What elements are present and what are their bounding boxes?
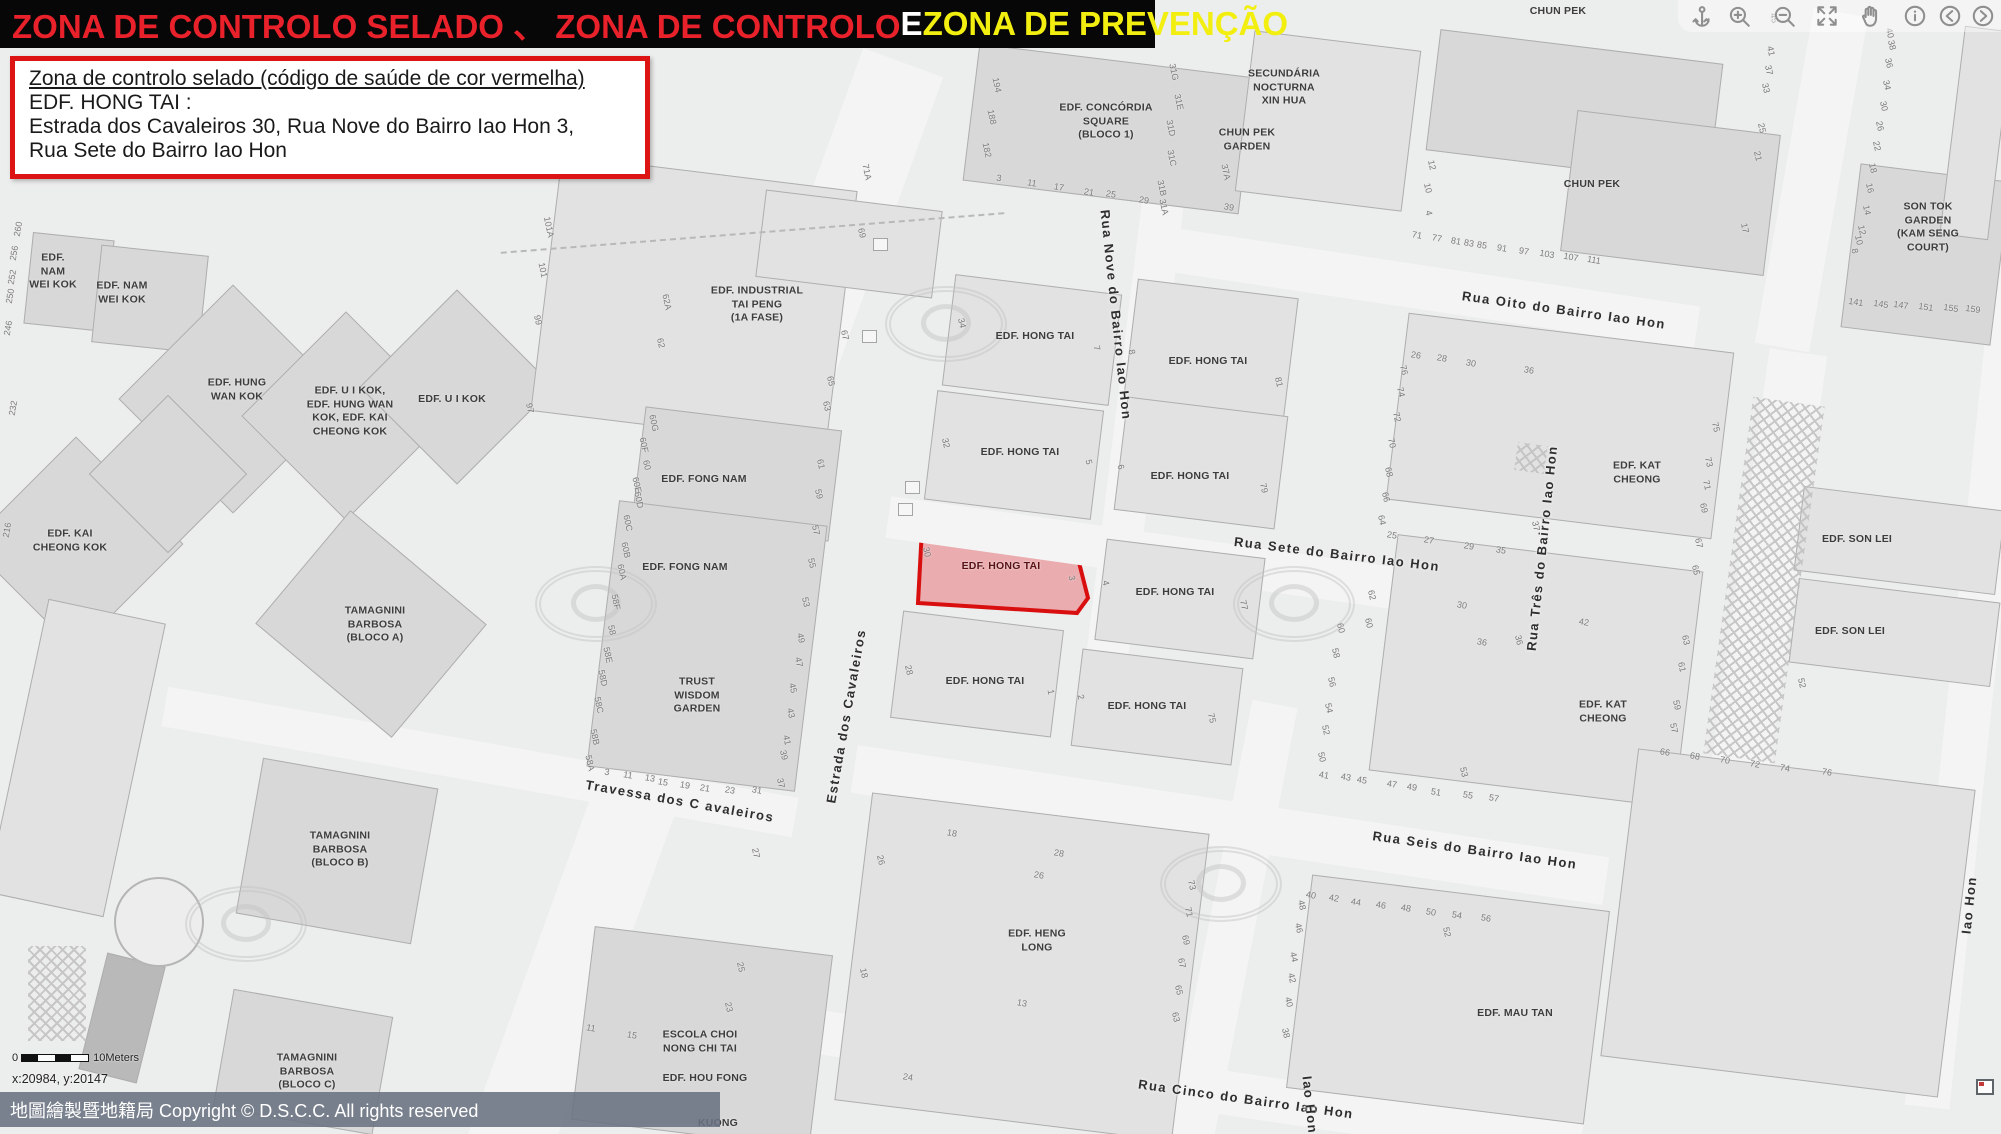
house-number-label: 37 <box>775 777 787 789</box>
crossing-marker <box>905 481 920 494</box>
hatched-area <box>28 946 86 1041</box>
house-number-label: 36 <box>1513 634 1525 646</box>
house-number-label: 52 <box>1441 926 1453 938</box>
house-number-label: 18 <box>1867 162 1879 174</box>
title-segment: ZONA DE CONTROLO SELADO 、 ZONA DE CONTRO… <box>12 0 901 48</box>
building-label-line: EDF. HONG TAI <box>962 560 1041 574</box>
house-number-label: 25 <box>1756 122 1768 134</box>
house-number-label: 53 <box>1458 766 1470 778</box>
building-label-line: TAMAGNINI <box>277 1052 338 1066</box>
info-line-address-1: Estrada dos Cavaleiros 30, Rua Nove do B… <box>29 115 633 139</box>
house-number-label: 22 <box>1871 140 1883 152</box>
house-number-label: 47 <box>1386 778 1398 790</box>
house-number-label: 63 <box>1170 1011 1182 1023</box>
building-label-line: ESCOLA CHOI <box>663 1028 738 1042</box>
house-number-label: 18 <box>946 827 958 839</box>
dscc-watermark <box>1160 846 1282 922</box>
house-number-label: 83 <box>1463 237 1475 249</box>
building-label: EDF. KATCHEONG <box>1579 698 1627 725</box>
building-label-line: WEI KOK <box>29 279 76 293</box>
house-number-label: 39 <box>778 749 790 761</box>
house-number-label: 66 <box>1659 746 1671 758</box>
building-label-line: (KAM SENG <box>1897 228 1959 242</box>
scale-bar-graphic <box>21 1054 89 1062</box>
house-number-label: 77 <box>1431 232 1443 244</box>
house-number-label: 55 <box>1462 789 1474 801</box>
building-label: EDF. HONG TAI <box>1108 700 1187 714</box>
house-number-label: 43 <box>1340 771 1352 783</box>
house-number-label: 30 <box>1878 100 1890 112</box>
house-number-label: 38 <box>1886 39 1898 51</box>
house-number-label: 39 <box>1223 201 1235 213</box>
building-footprint <box>1286 875 1610 1125</box>
house-number-label: 26 <box>1874 120 1886 132</box>
building-label: TAMAGNINIBARBOSA(BLOCO A) <box>345 605 406 646</box>
house-number-label: 65 <box>825 375 837 387</box>
building-label-line: WEI KOK <box>96 293 147 307</box>
house-number-label: 36 <box>1523 364 1535 376</box>
house-number-label: 29 <box>1138 194 1150 206</box>
building-label: EDF. SON LEI <box>1815 625 1885 639</box>
building-label: EDF. KATCHEONG <box>1613 459 1661 486</box>
house-number-label: 27 <box>750 847 762 859</box>
building-label-line: SON TOK <box>1897 201 1959 215</box>
back-icon[interactable] <box>1937 3 1963 29</box>
house-number-label: 46 <box>1293 922 1305 934</box>
building-label-line: (BLOCO C) <box>277 1079 338 1093</box>
building-label-line: EDF. HOU FONG <box>663 1072 748 1086</box>
building-label-line: SECUNDÁRIA <box>1248 68 1320 82</box>
house-number-label: 107 <box>1563 251 1580 263</box>
building-label-line: EDF. U I KOK <box>418 393 486 407</box>
house-number-label: 59 <box>1671 699 1683 711</box>
house-number-label: 25 <box>1105 188 1117 200</box>
copyright-bar: 地圖繪製暨地籍局 Copyright © D.S.C.C. All rights… <box>0 1092 720 1127</box>
building-label-line: CHEONG <box>1579 712 1627 726</box>
building-label: SON TOKGARDEN(KAM SENGCOURT) <box>1897 201 1959 256</box>
house-number-label: 67 <box>1693 537 1705 549</box>
building-label-line: LONG <box>1008 941 1066 955</box>
house-number-label: 147 <box>1893 299 1909 311</box>
building-label-line: (BLOCO B) <box>310 857 371 871</box>
house-number-label: 69 <box>856 227 868 239</box>
building-label: EDF. HONG TAI <box>946 675 1025 689</box>
house-number-label: 28 <box>903 664 915 676</box>
building-label-line: EDF. HUNG <box>208 376 266 390</box>
house-number-label: 44 <box>1350 896 1362 908</box>
building-label-line: (1A FASE) <box>711 312 803 326</box>
dscc-watermark <box>885 286 1007 362</box>
house-number-label: 68 <box>1689 750 1701 762</box>
zoom-in-icon[interactable] <box>1726 3 1752 29</box>
house-number-label: 41 <box>781 734 793 746</box>
building-label-line: (BLOCO A) <box>345 632 406 646</box>
building-label: EDF. KAICHEONG KOK <box>33 527 107 554</box>
house-number-label: 24 <box>902 1071 914 1083</box>
house-number-label: 54 <box>1323 702 1335 714</box>
scale-zero-label: 0 <box>12 1052 18 1064</box>
house-number-label: 256 <box>8 245 20 262</box>
building-label-line: CHEONG KOK <box>33 541 107 555</box>
house-number-label: 68 <box>1383 466 1395 478</box>
building-footprint <box>1235 30 1421 211</box>
building-label: EDF. MAU TAN <box>1477 1007 1553 1021</box>
building-label: EDF. HONG TAI <box>962 560 1041 574</box>
building-label: EDF. HONG TAI <box>996 330 1075 344</box>
house-number-label: 11 <box>586 1022 597 1033</box>
house-number-label: 10 <box>1853 234 1865 246</box>
house-number-label: 18 <box>858 967 870 979</box>
house-number-label: 57 <box>1488 792 1500 804</box>
house-number-label: 29 <box>1463 540 1475 552</box>
house-number-label: 19 <box>679 779 691 791</box>
building-label-line: EDF. INDUSTRIAL <box>711 285 803 299</box>
pan-hand-icon[interactable] <box>1857 3 1883 29</box>
scale-distance-label: 10Meters <box>93 1052 139 1064</box>
house-number-label: 47 <box>793 656 805 668</box>
building-label: ESCOLA CHOINONG CHI TAI <box>663 1028 738 1055</box>
building-label: EDF. HUNGWAN KOK <box>208 376 266 403</box>
house-number-label: 17 <box>1053 181 1065 193</box>
house-number-label: 37 <box>1530 520 1542 532</box>
building-label: EDF. FONG NAM <box>642 561 727 575</box>
house-number-label: 70 <box>1719 754 1731 766</box>
house-number-label: 57 <box>1668 722 1680 734</box>
house-number-label: 40 <box>1283 996 1295 1008</box>
house-number-label: 65 <box>1690 564 1702 576</box>
house-number-label: 67 <box>1176 957 1188 969</box>
building-footprint <box>890 611 1064 738</box>
house-number-label: 67 <box>839 329 851 341</box>
zoom-out-icon[interactable] <box>1771 3 1797 29</box>
fullscreen-icon[interactable] <box>1814 3 1840 29</box>
house-number-label: 31 <box>751 784 763 796</box>
building-label: EDF. INDUSTRIALTAI PENG(1A FASE) <box>711 285 803 326</box>
info-line-building: EDF. HONG TAI : <box>29 91 633 115</box>
house-number-label: 41 <box>1318 769 1330 781</box>
house-number-label: 81 <box>1273 376 1285 388</box>
forward-icon[interactable] <box>1970 3 1996 29</box>
building-label-line: EDF. FONG NAM <box>642 561 727 575</box>
info-icon[interactable] <box>1902 3 1928 29</box>
house-number-label: 66 <box>1380 491 1392 503</box>
building-label-line: GARDEN <box>1219 140 1275 154</box>
house-number-label: 69 <box>1180 934 1192 946</box>
building-label-line: EDF. <box>29 252 76 266</box>
house-number-label: 12 <box>1426 159 1438 171</box>
house-number-label: 159 <box>1965 303 1981 315</box>
house-number-label: 57 <box>810 524 822 536</box>
house-number-label: 42 <box>1286 972 1298 984</box>
house-number-label: 40 <box>1305 889 1317 901</box>
crossing-marker <box>873 238 888 251</box>
building-label-line: BARBOSA <box>277 1065 338 1079</box>
house-number-label: 17 <box>1739 222 1751 234</box>
dscc-watermark <box>535 566 657 642</box>
house-number-label: 38 <box>1280 1027 1292 1039</box>
house-number-label: 4 <box>1424 210 1435 217</box>
house-number-label: 10 <box>1422 182 1434 194</box>
house-number-label: 61 <box>1676 661 1688 673</box>
building-label-line: EDF. SON LEI <box>1822 533 1892 547</box>
title-segment: E <box>901 5 923 43</box>
house-number-label: 49 <box>795 632 807 644</box>
house-number-label: 72 <box>1749 758 1761 770</box>
house-number-label: 72 <box>1391 411 1403 423</box>
house-number-label: 85 <box>1476 239 1488 251</box>
building-footprint <box>1123 279 1298 418</box>
building-label: EDF. SON LEI <box>1822 533 1892 547</box>
house-number-label: 42 <box>1328 892 1340 904</box>
building-label-line: EDF. HONG TAI <box>1108 700 1187 714</box>
map-toolbar <box>1678 0 2001 32</box>
house-number-label: 73 <box>1703 456 1715 468</box>
house-number-label: 65 <box>1173 984 1185 996</box>
building-label-line: EDF. HENG <box>1008 927 1066 941</box>
house-number-label: 81 <box>1450 235 1462 247</box>
building-label: EDF. U I KOK,EDF. HUNG WANKOK, EDF. KAIC… <box>307 385 394 440</box>
house-number-label: 151 <box>1918 301 1934 313</box>
house-number-label: 60 <box>1335 622 1347 634</box>
house-number-label: 46 <box>1375 899 1387 911</box>
house-number-label: 43 <box>785 707 797 719</box>
copyright-text: 地圖繪製暨地籍局 Copyright © D.S.C.C. All rights… <box>10 1097 478 1123</box>
house-number-label: 36 <box>1476 636 1488 648</box>
building-label: EDF. HOU FONG <box>663 1072 748 1086</box>
house-number-label: 60 <box>1363 617 1375 629</box>
building-label-line: EDF. CONCÓRDIA <box>1059 102 1152 116</box>
building-label-line: EDF. NAM <box>96 279 147 293</box>
building-label-line: WAN KOK <box>208 390 266 404</box>
building-footprint <box>0 599 166 917</box>
dscc-watermark <box>185 886 307 962</box>
house-number-label: 26 <box>1410 349 1422 361</box>
building-label-line: KOK, EDF. KAI <box>307 412 394 426</box>
building-label: EDF. HONG TAI <box>1151 470 1230 484</box>
house-number-label: 91 <box>1496 242 1508 254</box>
house-number-label: 45 <box>787 682 799 694</box>
house-number-label: 97 <box>524 402 536 414</box>
house-number-label: 16 <box>1864 182 1876 194</box>
house-number-label: 75 <box>1710 421 1722 433</box>
house-number-label: 76 <box>1821 766 1833 778</box>
house-number-label: 30 <box>921 546 933 558</box>
building-footprint <box>1560 110 1781 276</box>
house-number-label: 23 <box>724 784 736 796</box>
house-number-label: 48 <box>1400 902 1412 914</box>
building-label: EDF. HONG TAI <box>1136 586 1215 600</box>
crossing-marker <box>898 503 913 516</box>
sealed-zone-info-box: Zona de controlo selado (código de saúde… <box>10 56 650 179</box>
building-label-line: TAI PENG <box>711 298 803 312</box>
house-number-label: 34 <box>1881 79 1893 91</box>
crossing-marker <box>862 330 877 343</box>
house-number-label: 74 <box>1779 762 1791 774</box>
building-footprint <box>1114 397 1289 530</box>
building-label: CHUN PEK <box>1564 178 1620 192</box>
house-number-label: 25 <box>1386 529 1398 541</box>
house-number-label: 21 <box>1083 186 1095 198</box>
building-label: EDF. HENGLONG <box>1008 927 1066 954</box>
building-label-line: TAMAGNINI <box>345 605 406 619</box>
building-label-line: EDF. HONG TAI <box>996 330 1075 344</box>
info-line-address-2: Rua Sete do Bairro Iao Hon <box>29 139 633 163</box>
house-number-label: 55 <box>806 557 818 569</box>
building-label-line: EDF. SON LEI <box>1815 625 1885 639</box>
house-number-label: 53 <box>800 596 812 608</box>
building-label-line: CHUN PEK <box>1530 5 1586 19</box>
house-number-label: 35 <box>1495 544 1507 556</box>
coordinates-readout: x:20984, y:20147 <box>12 1072 108 1086</box>
house-number-label: 145 <box>1873 298 1889 310</box>
house-number-label: 30 <box>1456 599 1468 611</box>
building-label-line: EDF. HONG TAI <box>946 675 1025 689</box>
house-number-label: 69 <box>1698 502 1710 514</box>
house-number-label: 26 <box>875 854 887 866</box>
house-number-label: 26 <box>1033 869 1045 881</box>
title-bar: ZONA DE CONTROLO SELADO 、 ZONA DE CONTRO… <box>0 0 1155 48</box>
house-number-label: 56 <box>1326 676 1338 688</box>
house-number-label: 74 <box>1395 386 1407 398</box>
house-number-label: 14 <box>1861 204 1873 216</box>
house-number-label: 63 <box>1680 634 1692 646</box>
house-number-label: 44 <box>1288 951 1300 963</box>
measure-icon[interactable] <box>1688 3 1714 29</box>
house-number-label: 27 <box>1423 534 1435 546</box>
building-label-line: TRUST <box>674 676 721 690</box>
building-label-line: CHUN PEK <box>1564 178 1620 192</box>
house-number-label: 21 <box>699 782 711 794</box>
house-number-label: 42 <box>1578 616 1590 628</box>
house-number-label: 59 <box>813 488 825 500</box>
house-number-label: 11 <box>1027 177 1038 188</box>
house-number-label: 56 <box>1480 912 1492 924</box>
house-number-label: 51 <box>1430 786 1442 798</box>
building-label-line: EDF. HONG TAI <box>1136 586 1215 600</box>
building-label-line: SQUARE <box>1059 115 1152 129</box>
building-label-line: EDF. KAT <box>1613 459 1661 473</box>
house-number-label: 33 <box>1760 82 1772 94</box>
building-label-line: CHEONG KOK <box>307 426 394 440</box>
house-number-label: 141 <box>1848 296 1864 308</box>
house-number-label: 48 <box>1296 899 1308 911</box>
house-number-label: 75 <box>1206 712 1218 724</box>
building-label-line: CHUN PEK <box>1219 126 1275 140</box>
building-footprint <box>1386 313 1734 540</box>
house-number-label: 60 <box>641 459 653 471</box>
building-footprint <box>1600 748 1975 1097</box>
building-label-line: NAM <box>29 265 76 279</box>
house-number-label: 37 <box>1763 64 1775 76</box>
building-label-line: (BLOCO 1) <box>1059 129 1152 143</box>
house-number-label: 62 <box>1366 589 1378 601</box>
building-label-line: XIN HUA <box>1248 95 1320 109</box>
house-number-label: 49 <box>1406 781 1418 793</box>
info-line-heading: Zona de controlo selado (código de saúde… <box>29 67 633 91</box>
house-number-label: 3 <box>1067 575 1078 582</box>
house-number-label: 11 <box>623 769 634 780</box>
building-label: EDF. FONG NAM <box>661 473 746 487</box>
house-number-label: 77 <box>1238 599 1250 611</box>
house-number-label: 21 <box>1752 150 1764 162</box>
house-number-label: 52 <box>1320 724 1332 736</box>
house-number-label: 30 <box>1465 357 1477 369</box>
building-label: EDF. HONG TAI <box>981 446 1060 460</box>
house-number-label: 58 <box>606 624 618 636</box>
building-label-line: BARBOSA <box>345 618 406 632</box>
house-number-label: 62 <box>655 337 667 349</box>
building-label: SECUNDÁRIANOCTURNAXIN HUA <box>1248 68 1320 109</box>
house-number-label: 64 <box>1376 514 1388 526</box>
house-number-label: 50 <box>1316 751 1328 763</box>
house-number-label: 71 <box>1411 229 1423 241</box>
building-label-line: EDF. HUNG WAN <box>307 398 394 412</box>
building-label-line: COURT) <box>1897 242 1959 256</box>
house-number-label: 99 <box>532 314 544 326</box>
house-number-label: 13 <box>1016 997 1028 1009</box>
house-number-label: 36 <box>1883 57 1895 69</box>
house-number-label: 70 <box>1386 437 1398 449</box>
title-segment: ZONA DE PREVENÇÃO <box>923 5 1288 43</box>
house-number-label: 15 <box>657 776 669 788</box>
building-label-line: NONG CHI TAI <box>663 1042 738 1056</box>
building-label-line: GARDEN <box>1897 214 1959 228</box>
house-number-label: 79 <box>1258 482 1270 494</box>
building-label: EDF. HONG TAI <box>1169 355 1248 369</box>
building-label: EDF. NAMWEI KOK <box>96 279 147 306</box>
house-number-label: 41 <box>1765 45 1777 57</box>
house-number-label: 111 <box>1586 254 1601 266</box>
building-label: TAMAGNINIBARBOSA(BLOCO C) <box>277 1052 338 1093</box>
building-label-line: EDF. HONG TAI <box>1169 355 1248 369</box>
map-application-window: EDF.NAMWEI KOKEDF. NAMWEI KOKEDF. HUNGWA… <box>0 0 2001 1134</box>
building-label: EDF.NAMWEI KOK <box>29 252 76 293</box>
building-label-line: NOCTURNA <box>1248 81 1320 95</box>
building-label-line: EDF. FONG NAM <box>661 473 746 487</box>
house-number-label: 28 <box>1053 847 1065 859</box>
house-number-label: 32 <box>940 437 952 449</box>
building-label-line: GARDEN <box>674 703 721 717</box>
house-number-label: 54 <box>1451 909 1463 921</box>
house-number-label: 71 <box>1701 479 1713 491</box>
building-label-line: EDF. KAT <box>1579 698 1627 712</box>
building-label: CHUN PEKGARDEN <box>1219 126 1275 153</box>
house-number-label: 50 <box>1425 906 1437 918</box>
house-number-label: 71 <box>1183 906 1195 918</box>
house-number-label: 61 <box>815 458 827 470</box>
house-number-label: 63 <box>821 400 833 412</box>
building-label-line: CHEONG <box>1613 473 1661 487</box>
house-number-label: 45 <box>1356 774 1368 786</box>
building-label-line: WISDOM <box>674 689 721 703</box>
building-label-line: BARBOSA <box>310 843 371 857</box>
building-label-line: EDF. MAU TAN <box>1477 1007 1553 1021</box>
house-number-label: 260 <box>12 221 24 238</box>
house-number-label: 34 <box>956 317 968 329</box>
house-number-label: 13 <box>644 772 656 784</box>
overview-map-icon[interactable] <box>1976 1079 1994 1095</box>
house-number-label: 28 <box>1436 352 1448 364</box>
building-label: EDF. U I KOK <box>418 393 486 407</box>
house-number-label: 31G <box>1167 63 1180 82</box>
building-label: CHUN PEK <box>1530 5 1586 19</box>
house-number-label: 76 <box>1398 364 1410 376</box>
house-number-label: 58 <box>1330 647 1342 659</box>
house-number-label: 232 <box>7 400 19 417</box>
building-label-line: EDF. KAI <box>33 527 107 541</box>
house-number-label: 250 <box>4 288 16 305</box>
house-number-label: 23 <box>723 1001 735 1013</box>
